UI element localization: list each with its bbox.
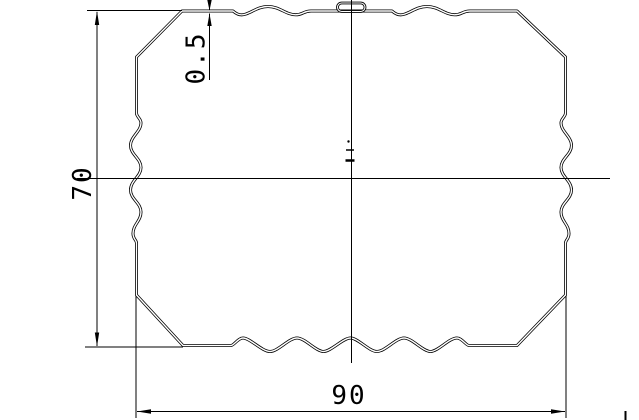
dimension-thickness: 0.5 xyxy=(182,0,212,84)
height-dimension-label: 70 xyxy=(68,165,98,200)
technical-drawing-canvas: 70 90 0.5 xyxy=(0,0,639,420)
center-lines xyxy=(77,0,610,363)
arrow-left-icon xyxy=(137,409,151,413)
arrow-right-icon xyxy=(551,409,565,413)
centerline-dot-mark xyxy=(347,140,349,142)
thickness-dimension-label: 0.5 xyxy=(182,32,212,85)
profile-drawing: 70 90 0.5 xyxy=(0,0,639,420)
width-dimension-label: 90 xyxy=(331,381,366,411)
arrow-up-icon xyxy=(95,11,99,25)
arrow-up-icon xyxy=(207,14,211,27)
arrow-down-icon xyxy=(95,333,99,347)
arrow-down-icon xyxy=(207,0,211,11)
